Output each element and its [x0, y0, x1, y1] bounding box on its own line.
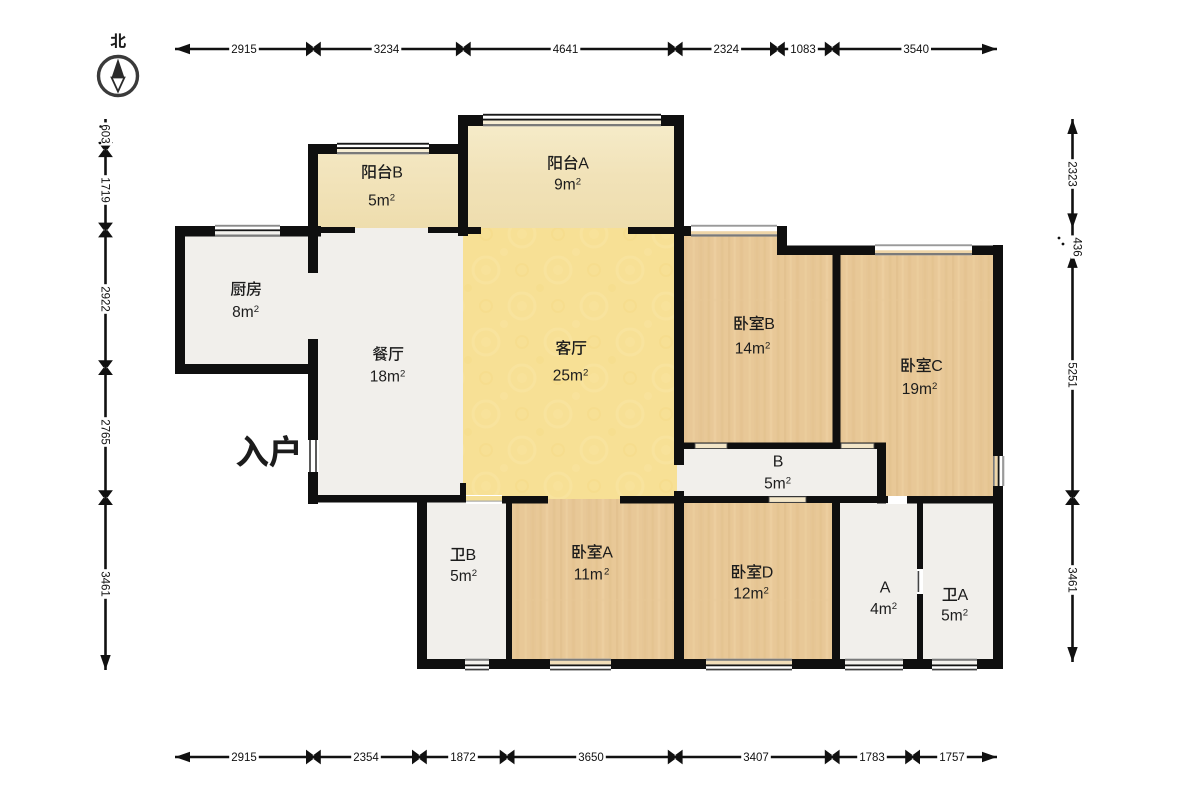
svg-text:2: 2: [576, 176, 581, 187]
svg-text:3540: 3540: [903, 44, 929, 56]
svg-text:B: B: [392, 165, 403, 182]
svg-text:2: 2: [963, 607, 968, 618]
svg-text:B: B: [773, 454, 784, 471]
svg-text:2: 2: [786, 475, 791, 486]
svg-text:2323: 2323: [1066, 161, 1078, 187]
svg-text:2324: 2324: [714, 44, 740, 56]
svg-text:D: D: [762, 565, 774, 582]
svg-text:4m: 4m: [870, 601, 892, 618]
svg-text:14m: 14m: [735, 341, 765, 358]
svg-text:1083: 1083: [790, 44, 816, 56]
svg-text:2915: 2915: [231, 752, 257, 764]
svg-text:1872: 1872: [450, 752, 476, 764]
svg-text:8m: 8m: [232, 304, 254, 321]
svg-text:A: A: [578, 156, 589, 173]
svg-text:A: A: [602, 545, 613, 562]
svg-text:5m: 5m: [764, 476, 786, 493]
svg-text:18m: 18m: [370, 369, 400, 386]
svg-text:4641: 4641: [553, 44, 579, 56]
svg-text:11m: 11m: [574, 567, 603, 584]
svg-text:3461: 3461: [1066, 567, 1078, 593]
svg-text:12m: 12m: [733, 586, 763, 603]
svg-text:A: A: [958, 587, 969, 604]
svg-text:9m: 9m: [554, 177, 576, 194]
svg-text:2: 2: [604, 566, 609, 577]
svg-text:B: B: [466, 547, 477, 564]
svg-text:5m: 5m: [450, 568, 472, 585]
svg-text:436: 436: [1071, 237, 1083, 256]
svg-text:2: 2: [583, 367, 588, 378]
svg-text:1783: 1783: [859, 752, 885, 764]
svg-text:2354: 2354: [353, 752, 379, 764]
svg-text:5251: 5251: [1066, 362, 1078, 388]
svg-text:1757: 1757: [939, 752, 965, 764]
svg-text:2: 2: [892, 601, 897, 612]
svg-text:C: C: [931, 358, 943, 375]
svg-text:5m: 5m: [368, 193, 390, 210]
svg-text:2: 2: [932, 381, 937, 392]
svg-text:B: B: [764, 316, 775, 333]
svg-text:2922: 2922: [99, 286, 111, 312]
svg-text:2: 2: [764, 585, 769, 596]
svg-text:2: 2: [400, 368, 405, 379]
svg-text:2: 2: [472, 568, 477, 579]
svg-text:3234: 3234: [374, 44, 400, 56]
svg-text:19m: 19m: [902, 381, 932, 398]
svg-text:25m: 25m: [553, 368, 583, 385]
svg-text:3461: 3461: [99, 571, 111, 597]
svg-text:2915: 2915: [231, 44, 257, 56]
svg-text:2: 2: [765, 340, 770, 351]
svg-text:2765: 2765: [99, 419, 111, 445]
svg-text:1719: 1719: [99, 177, 111, 203]
svg-text:2: 2: [254, 304, 259, 315]
svg-text:A: A: [880, 580, 891, 597]
svg-text:3407: 3407: [743, 752, 769, 764]
svg-text:3650: 3650: [578, 752, 604, 764]
svg-text:2: 2: [390, 192, 395, 203]
svg-text:5m: 5m: [941, 608, 963, 625]
